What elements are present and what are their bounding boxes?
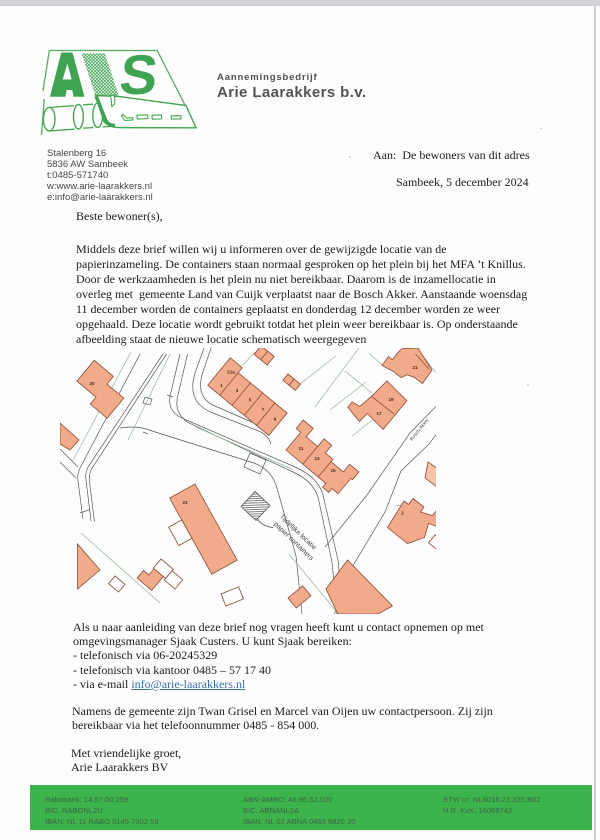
svg-text:21a: 21a: [227, 370, 235, 375]
svg-text:13: 13: [314, 456, 320, 461]
svg-text:15: 15: [330, 468, 336, 473]
svg-text:11: 11: [299, 446, 304, 451]
svg-text:3: 3: [236, 388, 239, 393]
svg-text:23: 23: [182, 500, 188, 505]
svg-text:Bosch-Akker: Bosch-Akker: [409, 417, 431, 442]
svg-text:21: 21: [412, 365, 418, 370]
svg-text:5: 5: [249, 398, 252, 403]
svg-text:1: 1: [220, 383, 223, 388]
svg-text:20: 20: [89, 381, 95, 386]
svg-text:1 1: 1 1: [419, 518, 424, 522]
svg-text:9: 9: [274, 417, 277, 422]
svg-text:17: 17: [376, 411, 382, 416]
svg-text:2: 2: [401, 511, 404, 516]
svg-text:7: 7: [262, 407, 265, 412]
svg-text:19: 19: [388, 397, 394, 402]
svg-text:S: S: [117, 46, 161, 106]
